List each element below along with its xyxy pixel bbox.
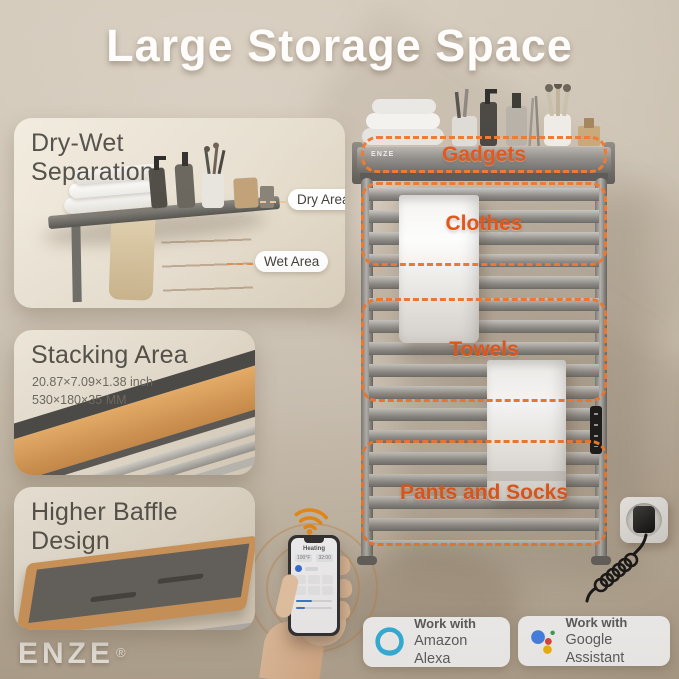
- panel-stacking-dimensions: 20.87×7.09×1.38 inch 530×180×35 MM: [32, 374, 153, 409]
- brand-logo-text: ENZE: [18, 637, 114, 670]
- badge-google-assistant: Work with Google Assistant: [518, 616, 670, 666]
- panel-dry-wet-separation: Dry-Wet Separation Dry Area: [14, 118, 345, 308]
- product-poster: Large Storage Space Dry-Wet Separation: [0, 0, 679, 679]
- panel-dry-wet-title: Dry-Wet Separation: [31, 129, 154, 186]
- phone-screen: Heating 100°F 32:00: [291, 538, 337, 633]
- app-title: Heating: [291, 546, 337, 552]
- app-temperature-value: 100°F: [295, 554, 312, 562]
- panel-stacking-title: Stacking Area: [31, 341, 188, 370]
- tray-slot: [90, 592, 136, 603]
- badge-alexa-line2: Amazon Alexa: [414, 632, 499, 668]
- app-mode-grid: [295, 575, 333, 595]
- panel-stacking-area: Stacking Area 20.87×7.09×1.38 inch 530×1…: [14, 330, 255, 475]
- panel-dry-wet-title-line1: Dry-Wet: [31, 129, 124, 157]
- dimension-inch: 20.87×7.09×1.38 inch: [32, 375, 153, 389]
- panel-dry-wet-title-line2: Separation: [31, 158, 154, 186]
- panel-baffle-title: Higher Baffle Design: [31, 498, 178, 555]
- panel-baffle-title-line2: Design: [31, 527, 110, 555]
- shelf-leg: [71, 216, 81, 302]
- dimension-mm: 530×180×35 MM: [32, 393, 127, 407]
- zone-box-towels: Towels: [361, 298, 607, 402]
- wood-cabinet-photo: [161, 216, 254, 305]
- brand-logo: ENZE®: [18, 637, 126, 671]
- google-assistant-icon: [529, 624, 557, 658]
- registered-trademark-icon: ®: [116, 645, 126, 660]
- zone-label-gadgets: Gadgets: [442, 143, 526, 167]
- badge-amazon-alexa: Work with Amazon Alexa: [363, 617, 510, 667]
- badge-google-line2: Google Assistant: [566, 631, 660, 667]
- dry-area-label: Dry Area: [288, 189, 345, 210]
- wet-area-label: Wet Area: [255, 251, 328, 272]
- app-slider: [296, 607, 332, 609]
- badge-alexa-line1: Work with: [414, 616, 499, 632]
- zone-label-clothes: Clothes: [445, 212, 522, 236]
- app-slider: [296, 600, 332, 602]
- zone-label-pants-socks: Pants and Socks: [400, 481, 568, 505]
- tray-slot: [157, 573, 203, 584]
- page-title: Large Storage Space: [0, 20, 679, 72]
- zone-box-gadgets: Gadgets: [361, 136, 607, 173]
- zone-box-pants-socks: Pants and Socks: [361, 440, 607, 546]
- app-mode-button: [308, 575, 319, 584]
- app-timer-value: 32:00: [316, 554, 333, 562]
- app-mode-button: [322, 586, 333, 595]
- app-chip: [305, 567, 318, 571]
- badge-google-line1: Work with: [566, 615, 660, 631]
- phone-notch: [304, 538, 324, 543]
- zone-label-towels: Towels: [449, 338, 519, 362]
- dry-area-leader-line: [260, 201, 286, 203]
- app-mode-button: [322, 575, 333, 584]
- wet-area-leader-line: [227, 263, 253, 265]
- amazon-alexa-icon: [374, 625, 405, 659]
- panel-higher-baffle: Higher Baffle Design: [14, 487, 255, 630]
- wifi-icon: [290, 501, 331, 537]
- app-mode-button: [308, 586, 319, 595]
- hanging-towel-photo: [109, 217, 156, 300]
- zone-box-clothes: Clothes: [361, 182, 607, 266]
- rack-foot: [357, 556, 377, 565]
- app-power-button: [295, 565, 302, 572]
- power-plug: [633, 506, 655, 533]
- panel-baffle-title-line1: Higher Baffle: [31, 498, 178, 526]
- rack-shelf-lip: [360, 173, 608, 181]
